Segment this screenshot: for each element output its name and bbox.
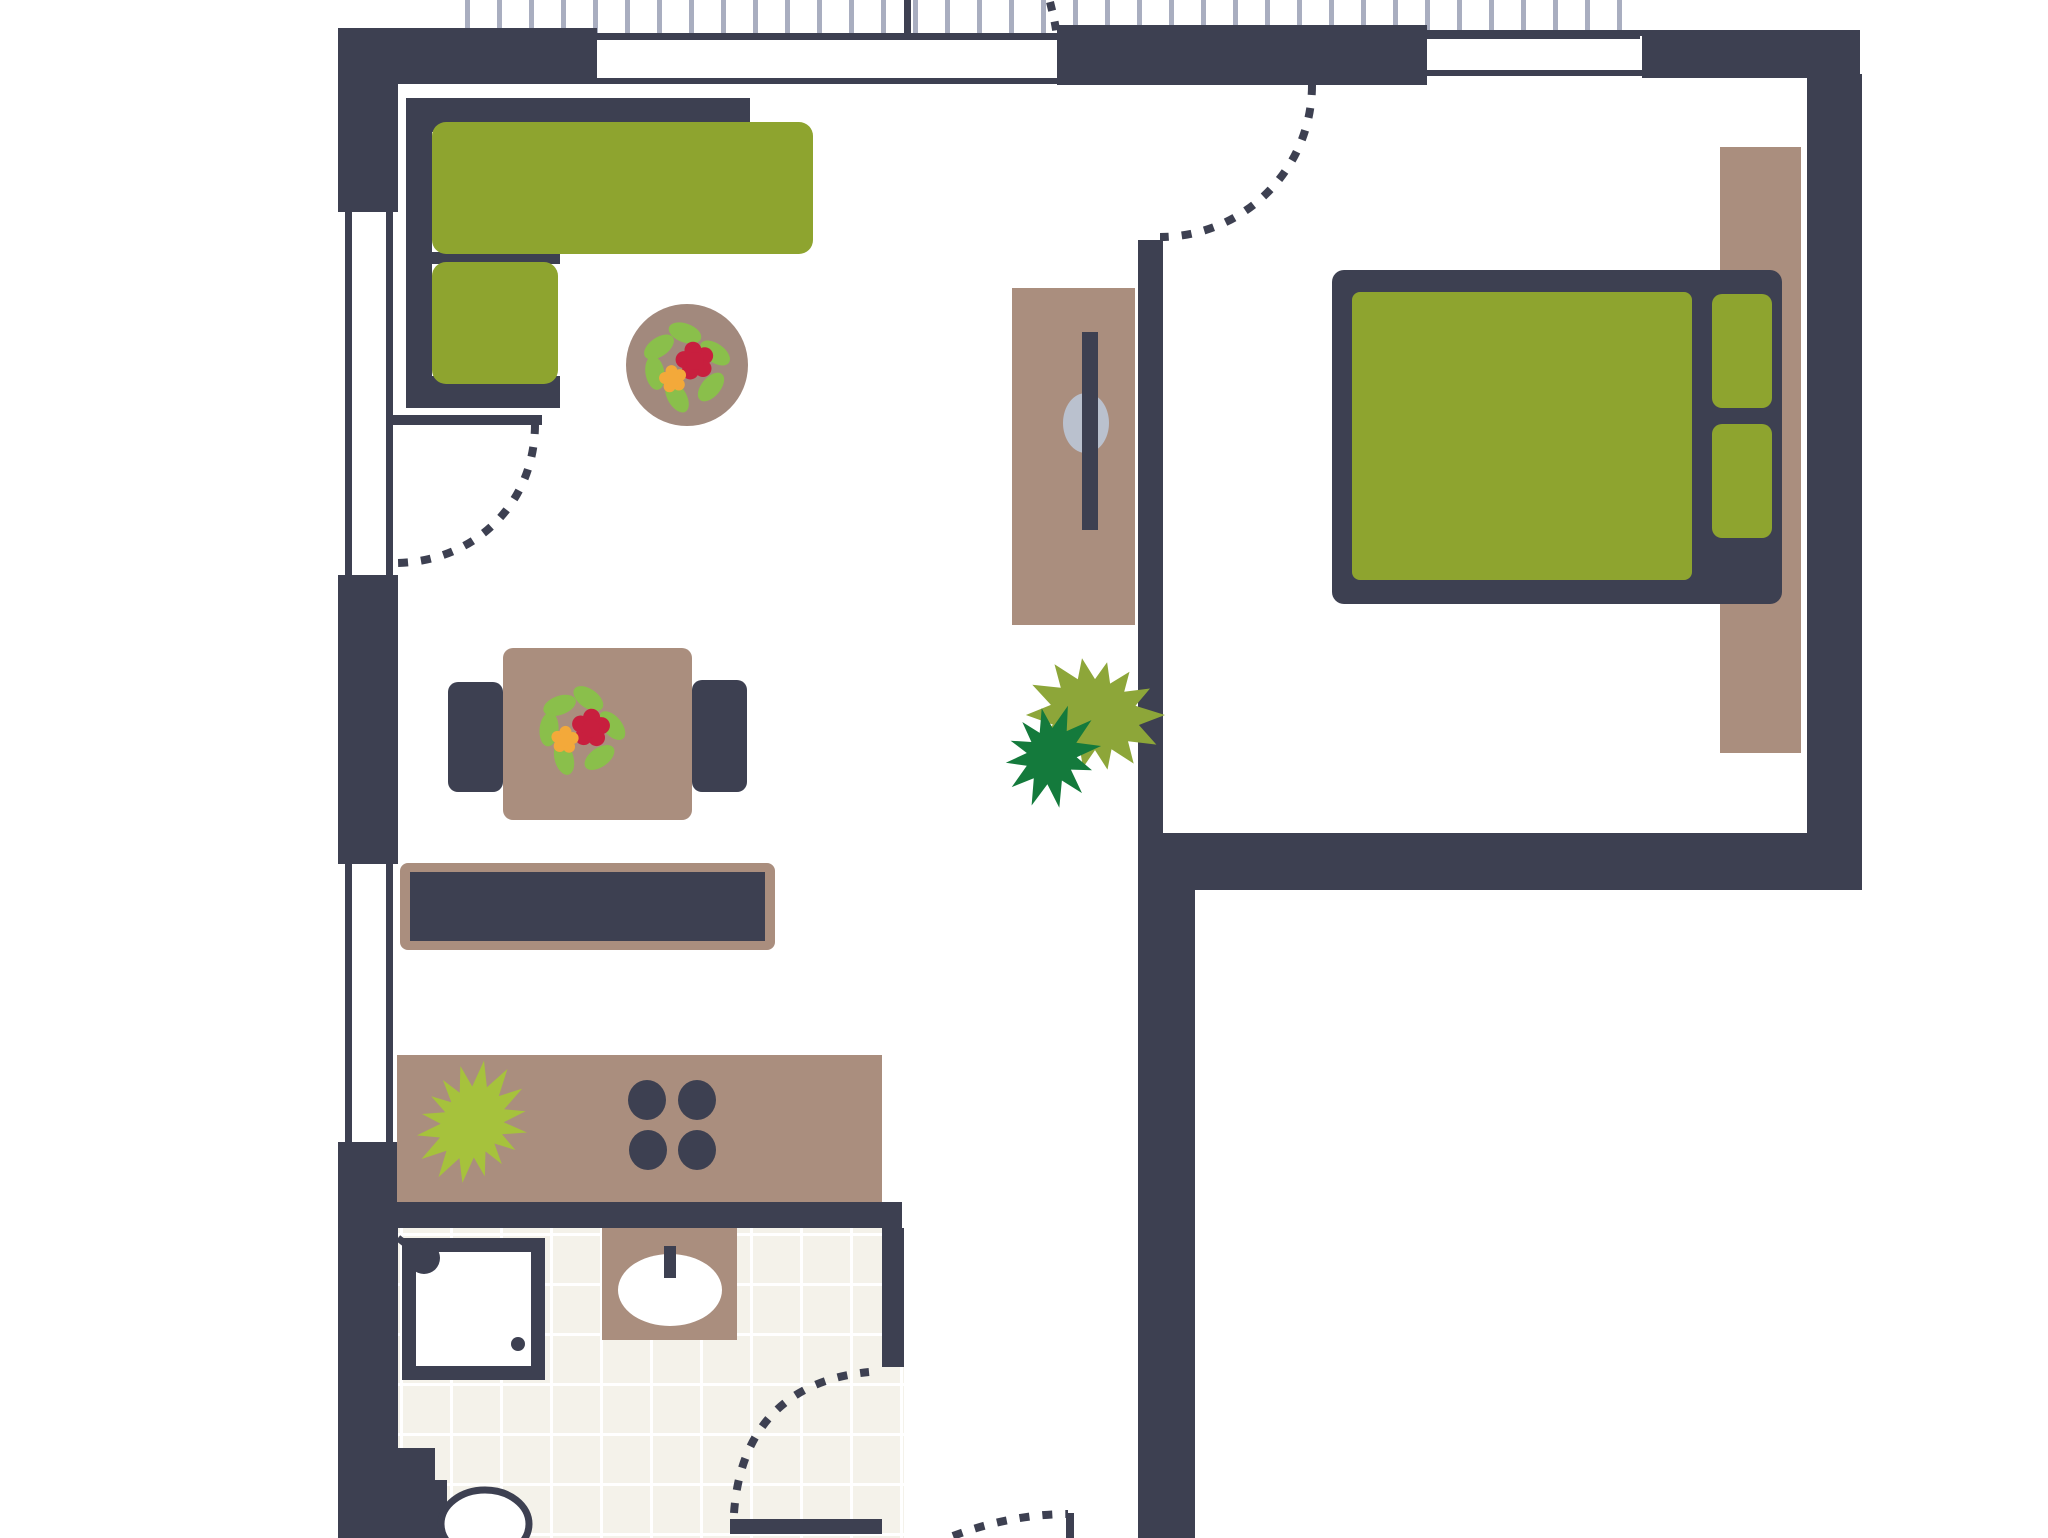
bedroom-door-swing-arc: [1160, 85, 1312, 237]
layer-bedroom: [1332, 147, 1801, 753]
floor-plan: [0, 0, 2048, 1538]
wall-right: [1807, 74, 1862, 890]
sofa-back-left: [406, 98, 432, 408]
entry-door-swing-arc: [953, 1514, 1068, 1536]
stove-burner-4: [678, 1130, 716, 1170]
wall-left-lower: [338, 1142, 398, 1538]
toilet-bowl: [441, 1490, 529, 1538]
living-door-swing-arc: [394, 424, 535, 563]
bed-mattress: [1352, 292, 1692, 580]
window-top-living-inner: [597, 78, 1068, 84]
wall-left-middle: [338, 575, 398, 864]
balcony-door-swing-arc: [1050, 2, 1057, 38]
window-left-kitchen-inner: [386, 864, 393, 1142]
bed-pillow-top: [1712, 294, 1772, 408]
floor-plan-canvas: [0, 0, 2048, 1538]
sink-tap: [664, 1246, 676, 1278]
window-top-bedroom-outer: [1427, 30, 1642, 36]
layer-living-room: [400, 98, 813, 950]
wall-left-upper: [338, 28, 398, 212]
dining-chair-right: [692, 680, 747, 792]
sofa-seat-long: [432, 122, 813, 254]
wall-bedroom-bottom: [1138, 833, 1862, 890]
stove-burner-1: [628, 1080, 666, 1120]
wall-top-middle: [1057, 25, 1427, 85]
dining-chair-left: [448, 682, 503, 792]
shower-drain: [511, 1337, 525, 1351]
window-left-living-inner: [386, 210, 393, 575]
window-left-kitchen-outer: [345, 864, 352, 1142]
wall-bathroom-right: [882, 1228, 904, 1367]
layer-kitchen: [397, 1055, 882, 1202]
stove-burner-2: [678, 1080, 716, 1120]
railing-ticks: [465, 0, 1622, 34]
toilet-tank-upper: [390, 1448, 435, 1482]
sofa-seat-short: [432, 262, 558, 384]
railing-divider: [904, 0, 911, 38]
stove-burner-3: [629, 1130, 667, 1170]
wall-top-right: [1642, 30, 1860, 78]
shower-head: [408, 1242, 440, 1274]
wall-divider-bedroom: [1138, 240, 1163, 833]
desk: [1012, 288, 1135, 625]
wall-bathroom-top: [347, 1202, 902, 1228]
wall-corridor-right: [1138, 890, 1195, 1538]
bathroom-door-tile-strip: [882, 1367, 904, 1538]
window-left-living-outer: [345, 210, 352, 575]
bathroom-door-leaf: [730, 1519, 882, 1534]
window-top-bedroom-inner: [1427, 70, 1642, 76]
sideboard-top: [410, 872, 765, 941]
window-top-living-outer: [597, 34, 1068, 40]
desk-monitor: [1082, 332, 1098, 530]
living-door-leaf: [388, 415, 542, 425]
bed-pillow-bottom: [1712, 424, 1772, 538]
